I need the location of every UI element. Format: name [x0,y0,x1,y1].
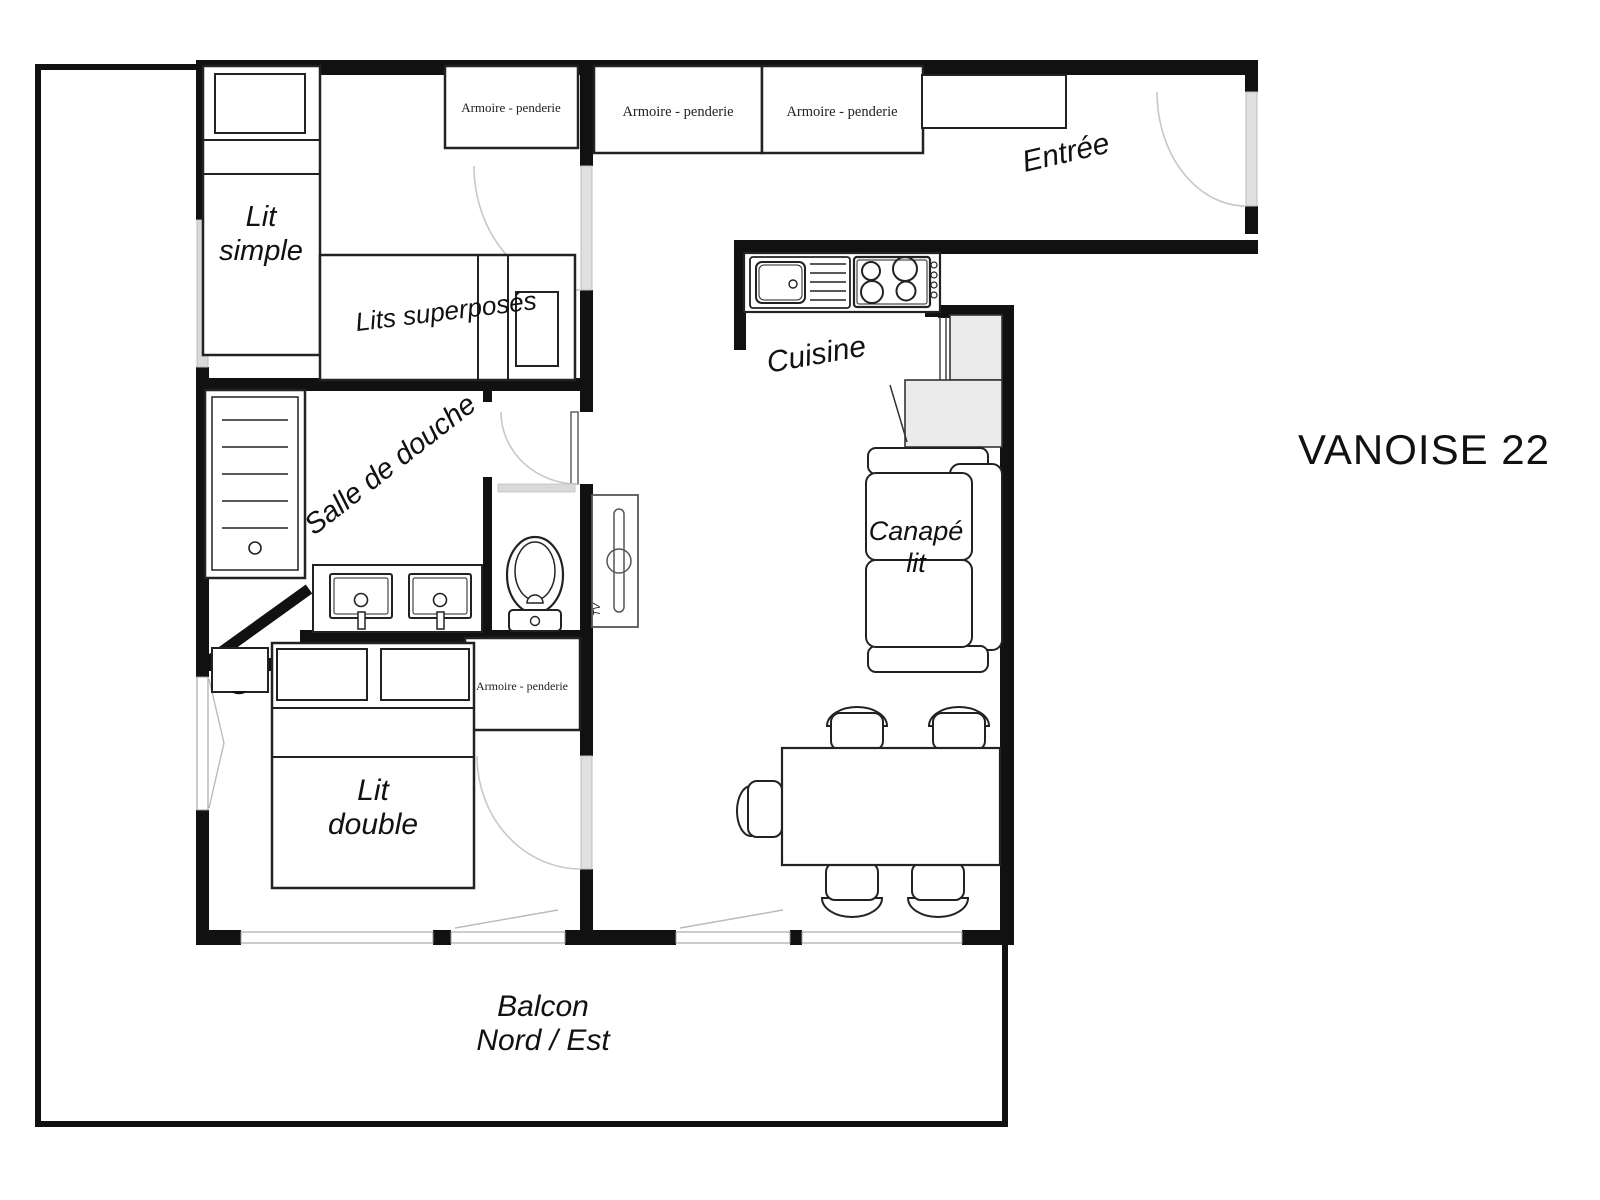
kitchen-sink-basin-inner [759,265,802,300]
wall-bottom-seg2 [433,930,451,945]
shower-door-leaf [571,412,578,484]
window-bottom-3 [676,932,790,943]
shower-room-label: Salle de douche [299,388,483,541]
tv-unit: TV [592,495,638,627]
single-bed-pillow [215,74,305,133]
wall-separator-a [580,60,593,166]
wall-entry-right-upper [1245,60,1258,92]
double-bed-label-line1: Lit [357,774,390,807]
single-bed-label-line2: simple [219,235,303,267]
wall-separator-b [580,290,593,412]
nightstand [212,648,268,692]
wardrobe-label: Armoire - penderie [786,104,897,120]
wall-entry-right-lower [1245,206,1258,234]
wc-door-threshold [498,484,575,492]
window-casement-line [455,910,558,928]
tv-label: TV [592,602,603,616]
sofa-label-line1: Canapé [869,516,964,546]
wall-entry-bottom [734,240,1258,254]
sink-tap [358,612,365,629]
plan-title: VANOISE 22 [1298,426,1550,473]
wall-bottom-seg4 [790,930,802,945]
dining-chair [933,713,985,750]
window-casement-line [209,743,224,808]
bedroom1-door-leaf [581,166,592,290]
balcony-label-line2: Nord / Est [476,1024,611,1057]
sofa-bed: Canapé lit [866,448,1002,672]
entry-door-leaf [1246,92,1257,206]
bedroom2-door-swing-arc [477,756,581,869]
wall-wc-left [483,477,492,643]
shower-room-furniture: Salle de douche [205,388,482,632]
shower-door-swing-arc [501,412,578,484]
double-bed-pillow [381,649,469,700]
wall-separator-d [580,869,593,945]
dining-set [737,707,1000,917]
double-bed-pillow [277,649,367,700]
wall-bottom-seg1 [196,930,241,945]
wardrobe-label: Armoire - penderie [622,104,733,120]
balcony-label-line1: Balcon [497,990,589,1023]
sofa-armrest-bottom [868,646,988,672]
floor-plan: Armoire - penderie Armoire - penderie Ar… [0,0,1600,1200]
kitchen-furniture: Cuisine [744,253,1002,447]
window-bottom-2 [451,932,565,943]
sink-basin-inner [413,578,467,614]
window-casement-line [680,910,783,928]
dining-table [782,748,1000,865]
entry-label: Entrée [1019,127,1113,179]
kitchen-label: Cuisine [764,330,868,380]
wardrobe-label: Armoire - penderie [476,679,568,693]
entry-door-swing-arc [1157,92,1246,206]
wall-wc-left-stub [483,391,492,402]
double-bed-label-line2: double [328,808,418,841]
shower-stall-inner [212,397,298,570]
bedroom2-furniture: Lit double [212,643,474,888]
entry-cabinet [922,75,1066,128]
window-bottom-1 [241,932,433,943]
wc-furniture [507,537,563,631]
dining-chair [912,863,964,900]
nightstand-knob [231,691,247,694]
toilet-tank [509,610,561,631]
wall-separator-c [580,484,593,756]
window-bottom-4 [802,932,962,943]
wall-west-lower [196,810,209,945]
sink-basin-inner [334,578,388,614]
wardrobe-label: Armoire - penderie [461,100,561,115]
appliance-cabinet [905,380,1002,447]
dining-chair [831,713,883,750]
dining-chair [826,863,878,900]
dining-chair [748,781,782,837]
appliance-fridge [950,315,1002,380]
sofa-label-line2: lit [906,548,927,578]
tv-screen [614,509,624,612]
window-west-lower [197,677,208,810]
single-bed-label-line1: Lit [246,201,279,233]
sink-tap [437,612,444,629]
bedroom2-door-leaf [581,756,592,869]
floor-plan-svg: Armoire - penderie Armoire - penderie Ar… [0,0,1600,1200]
